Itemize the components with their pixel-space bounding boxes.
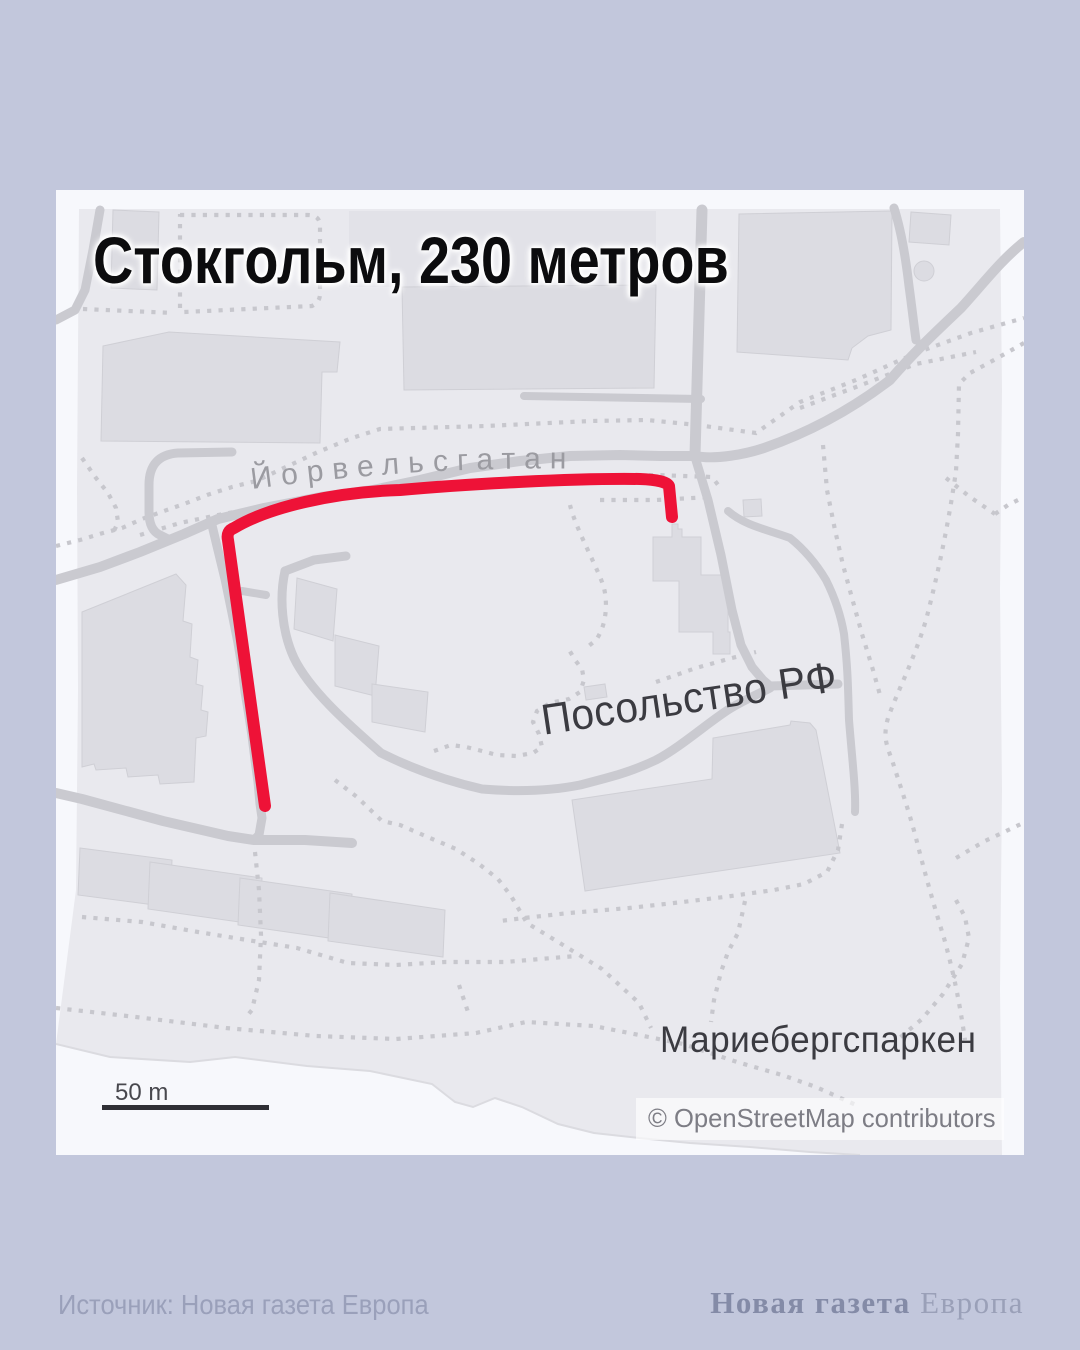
svg-text:© OpenStreetMap contributors: © OpenStreetMap contributors <box>648 1105 996 1133</box>
svg-text:Мариебергспаркен: Мариебергспаркен <box>660 1018 976 1060</box>
svg-text:50 m: 50 m <box>115 1079 168 1106</box>
